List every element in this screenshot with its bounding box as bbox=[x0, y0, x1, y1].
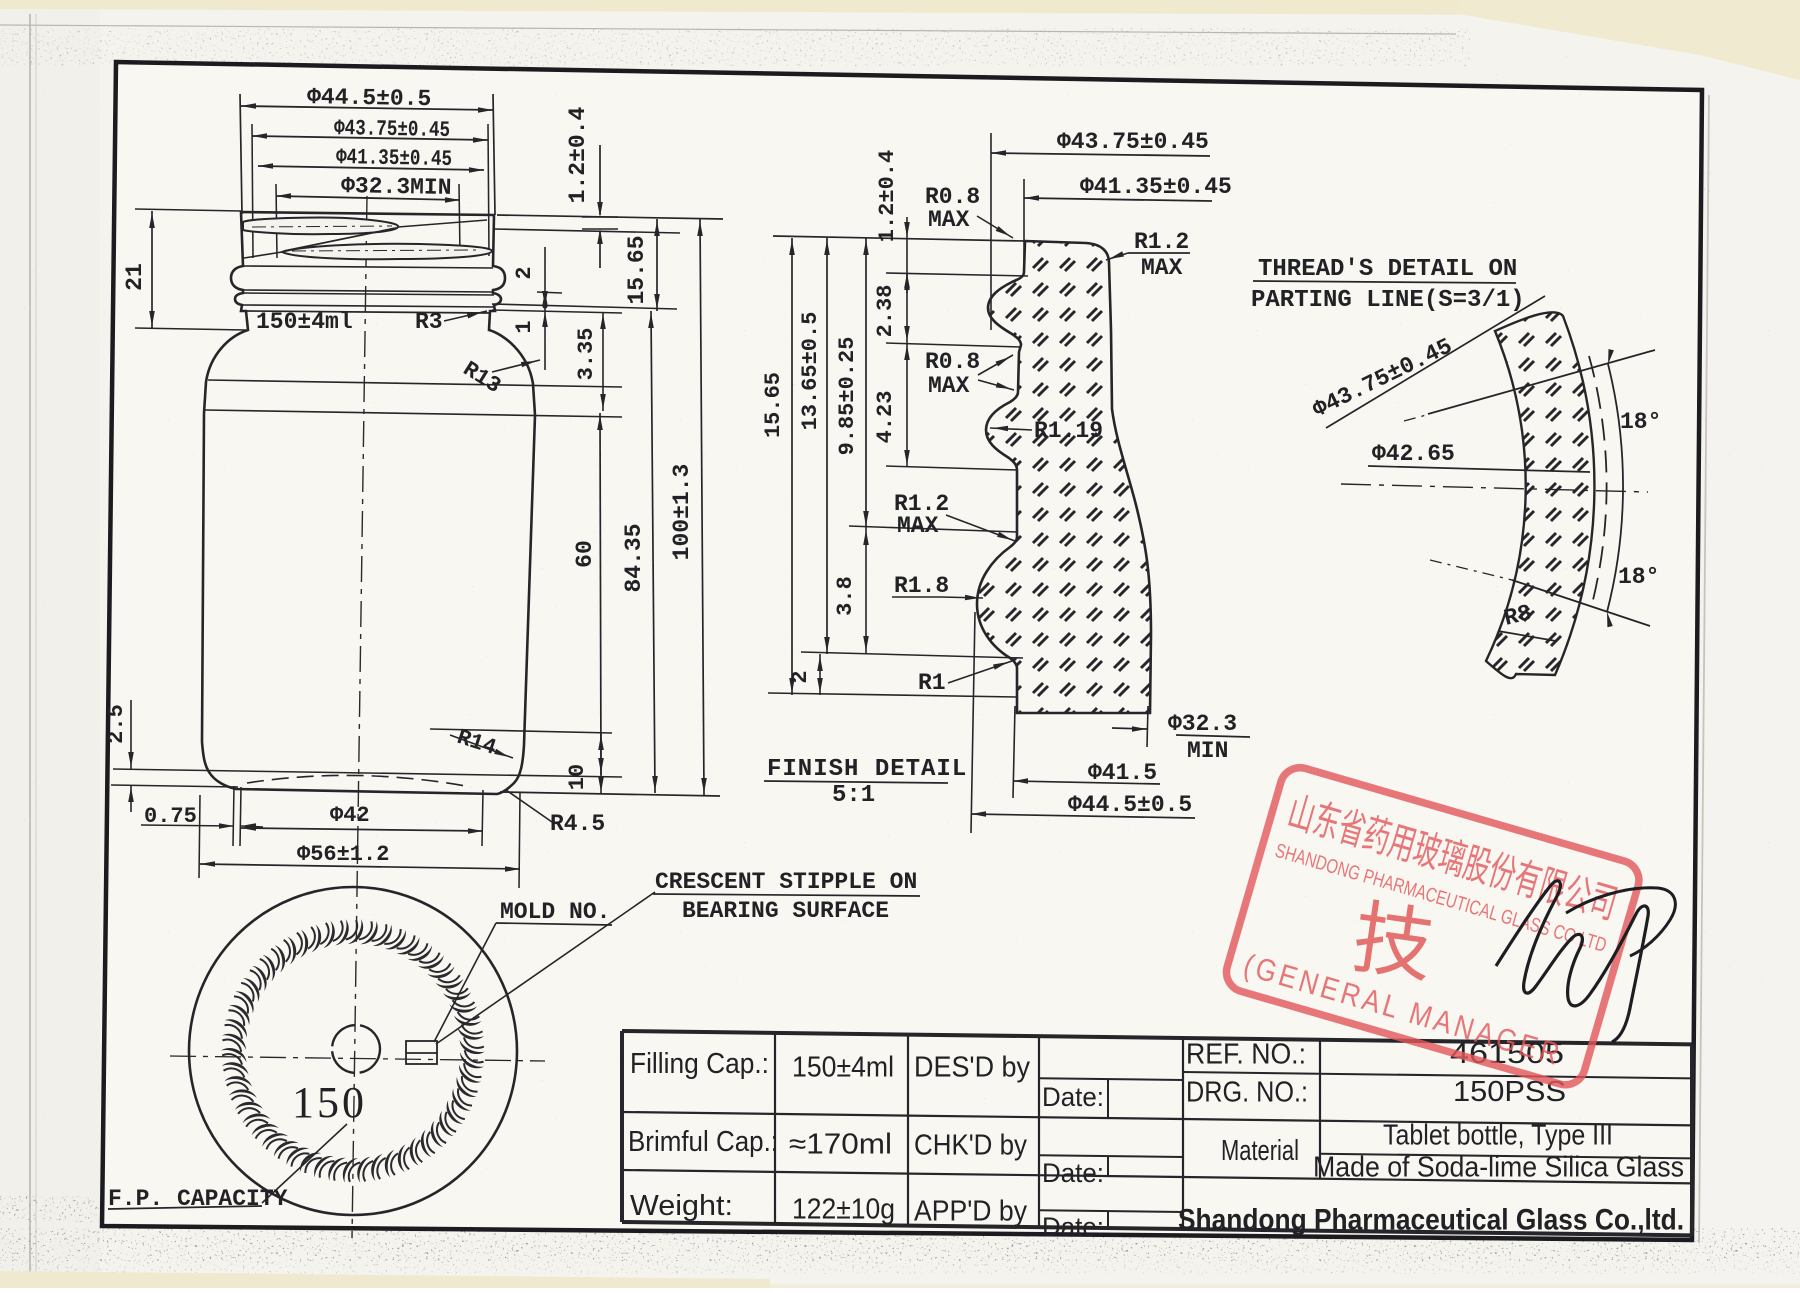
svg-text:Date:: Date: bbox=[1042, 1158, 1104, 1188]
svg-text:APP'D by: APP'D by bbox=[914, 1195, 1027, 1227]
svg-text:Φ32.3: Φ32.3 bbox=[1168, 711, 1237, 737]
svg-text:R1.2: R1.2 bbox=[1134, 229, 1189, 255]
svg-text:R1.19: R1.19 bbox=[1034, 418, 1103, 444]
svg-text:3.8: 3.8 bbox=[833, 576, 858, 616]
svg-text:Brimful Cap.:: Brimful Cap.: bbox=[628, 1126, 778, 1158]
svg-text:2: 2 bbox=[788, 670, 813, 683]
svg-text:15.65: 15.65 bbox=[761, 372, 786, 438]
svg-text:DRG. NO.:: DRG. NO.: bbox=[1186, 1077, 1308, 1109]
svg-text:18°: 18° bbox=[1618, 564, 1659, 590]
svg-text:150±4ml: 150±4ml bbox=[256, 309, 353, 335]
svg-text:PARTING LINE(S=3/1): PARTING LINE(S=3/1) bbox=[1251, 287, 1525, 314]
svg-text:100±1.3: 100±1.3 bbox=[669, 464, 695, 561]
svg-text:MAX: MAX bbox=[928, 373, 970, 399]
svg-text:Φ41.35±0.45: Φ41.35±0.45 bbox=[1080, 174, 1232, 200]
svg-text:R1.8: R1.8 bbox=[894, 573, 949, 599]
svg-text:150±4ml: 150±4ml bbox=[792, 1052, 894, 1084]
svg-text:15.65: 15.65 bbox=[624, 235, 650, 304]
svg-text:2.5: 2.5 bbox=[104, 704, 129, 744]
svg-text:9.85±0.25: 9.85±0.25 bbox=[835, 337, 860, 456]
svg-text:84.35: 84.35 bbox=[621, 523, 647, 592]
svg-text:Φ32.3MIN: Φ32.3MIN bbox=[341, 173, 452, 201]
svg-text:13.65±0.5: 13.65±0.5 bbox=[798, 312, 823, 431]
svg-text:1.2±0.4: 1.2±0.4 bbox=[565, 106, 591, 203]
svg-text:3.35: 3.35 bbox=[574, 328, 599, 381]
svg-text:REF. NO.:: REF. NO.: bbox=[1186, 1039, 1306, 1071]
svg-text:Weight:: Weight: bbox=[630, 1190, 733, 1222]
svg-text:R0.8: R0.8 bbox=[925, 349, 980, 375]
svg-text:Date:: Date: bbox=[1042, 1082, 1104, 1112]
svg-text:MIN: MIN bbox=[1187, 738, 1228, 764]
svg-text:FINISH DETAIL: FINISH DETAIL bbox=[767, 756, 967, 783]
svg-text:Shandong Pharmaceutical Glass: Shandong Pharmaceutical Glass Co.,ltd. bbox=[1178, 1204, 1684, 1237]
svg-text:150: 150 bbox=[292, 1078, 367, 1127]
svg-text:5:1: 5:1 bbox=[832, 782, 875, 809]
svg-text:4.23: 4.23 bbox=[873, 391, 898, 444]
svg-text:CHK'D by: CHK'D by bbox=[914, 1129, 1027, 1161]
svg-text:BEARING SURFACE: BEARING SURFACE bbox=[682, 898, 889, 924]
svg-text:MAX: MAX bbox=[1141, 255, 1183, 281]
svg-text:CRESCENT STIPPLE ON: CRESCENT STIPPLE ON bbox=[655, 869, 917, 895]
svg-text:Made of Soda-lime Silica Glass: Made of Soda-lime Silica Glass bbox=[1313, 1152, 1684, 1184]
svg-text:Φ42.65: Φ42.65 bbox=[1372, 441, 1455, 467]
svg-text:Φ43.75±0.45: Φ43.75±0.45 bbox=[1057, 129, 1209, 155]
svg-text:Φ42: Φ42 bbox=[330, 803, 370, 828]
svg-text:THREAD'S DETAIL ON: THREAD'S DETAIL ON bbox=[1258, 256, 1517, 283]
svg-text:≈170ml: ≈170ml bbox=[789, 1129, 892, 1161]
svg-text:MAX: MAX bbox=[897, 513, 939, 539]
svg-text:Φ56±1.2: Φ56±1.2 bbox=[297, 842, 389, 867]
svg-text:Tablet bottle, Type III: Tablet bottle, Type III bbox=[1383, 1120, 1613, 1152]
svg-text:Φ44.5±0.5: Φ44.5±0.5 bbox=[1068, 792, 1192, 818]
svg-text:Date:: Date: bbox=[1042, 1212, 1104, 1242]
svg-text:1: 1 bbox=[512, 320, 537, 333]
svg-text:21: 21 bbox=[122, 263, 148, 291]
svg-text:2: 2 bbox=[512, 266, 537, 279]
svg-text:18°: 18° bbox=[1620, 409, 1661, 435]
svg-text:R1: R1 bbox=[918, 670, 946, 696]
svg-text:MOLD NO.: MOLD NO. bbox=[500, 899, 610, 925]
svg-text:R4.5: R4.5 bbox=[550, 811, 605, 837]
svg-text:2.38: 2.38 bbox=[873, 285, 898, 338]
svg-text:60: 60 bbox=[572, 540, 598, 568]
svg-text:DES'D by: DES'D by bbox=[914, 1051, 1030, 1083]
svg-text:MAX: MAX bbox=[928, 207, 970, 233]
svg-text:Filling Cap.:: Filling Cap.: bbox=[630, 1048, 769, 1080]
svg-text:122±10g: 122±10g bbox=[792, 1194, 895, 1226]
svg-text:Material: Material bbox=[1221, 1135, 1299, 1167]
svg-text:1.2±0.4: 1.2±0.4 bbox=[875, 150, 900, 242]
